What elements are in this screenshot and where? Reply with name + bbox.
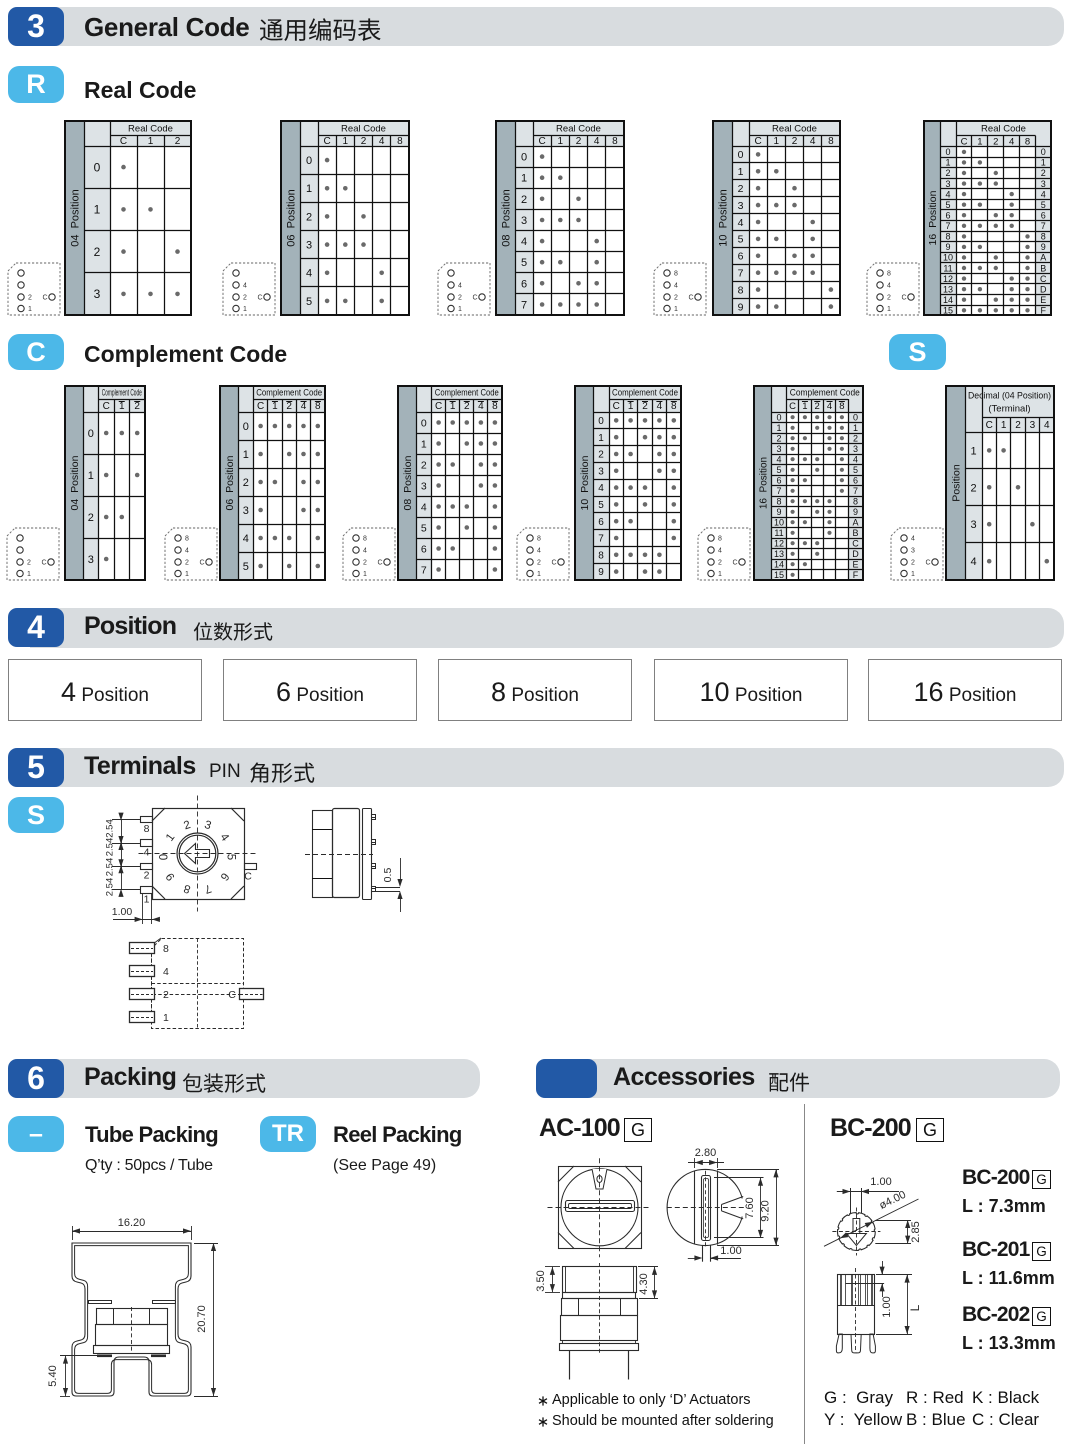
svg-text:13: 13 bbox=[943, 284, 953, 294]
svg-text:0: 0 bbox=[521, 152, 527, 164]
svg-text:4: 4 bbox=[1041, 189, 1046, 199]
svg-text:2: 2 bbox=[421, 459, 427, 471]
svg-text:8: 8 bbox=[718, 535, 722, 542]
svg-text:C: C bbox=[925, 560, 930, 567]
svg-text:4: 4 bbox=[243, 282, 247, 289]
svg-text:8: 8 bbox=[839, 401, 844, 412]
svg-text:8: 8 bbox=[671, 401, 677, 412]
svg-text:1: 1 bbox=[421, 438, 427, 450]
svg-text:8: 8 bbox=[738, 284, 744, 296]
svg-text:1: 1 bbox=[119, 401, 125, 412]
svg-text:1: 1 bbox=[94, 203, 101, 217]
svg-text:1: 1 bbox=[163, 1012, 169, 1024]
svg-text:3: 3 bbox=[243, 505, 249, 517]
svg-text:04 Position: 04 Position bbox=[70, 189, 82, 246]
svg-text:1: 1 bbox=[718, 571, 722, 578]
svg-text:C: C bbox=[435, 401, 442, 412]
svg-text:3: 3 bbox=[1041, 179, 1046, 189]
svg-text:C: C bbox=[257, 295, 262, 302]
svg-text:2: 2 bbox=[738, 183, 744, 195]
svg-text:1: 1 bbox=[88, 470, 94, 482]
svg-text:1.00: 1.00 bbox=[870, 1176, 891, 1188]
svg-text:10: 10 bbox=[774, 518, 784, 528]
svg-text:C: C bbox=[688, 295, 693, 302]
svg-text:1: 1 bbox=[1041, 158, 1046, 168]
svg-text:C: C bbox=[323, 136, 330, 147]
svg-text:2: 2 bbox=[945, 168, 950, 178]
svg-text:4: 4 bbox=[379, 136, 385, 147]
svg-text:6: 6 bbox=[738, 251, 744, 263]
svg-text:11: 11 bbox=[774, 528, 783, 538]
svg-text:Real Code: Real Code bbox=[341, 123, 386, 134]
svg-text:1: 1 bbox=[363, 571, 367, 578]
svg-text:4: 4 bbox=[657, 401, 663, 412]
svg-text:2: 2 bbox=[134, 401, 140, 412]
svg-text:16 Position: 16 Position bbox=[758, 457, 769, 509]
svg-text:4: 4 bbox=[217, 832, 231, 845]
svg-text:1: 1 bbox=[28, 306, 32, 313]
svg-text:8: 8 bbox=[598, 550, 604, 561]
svg-text:C: C bbox=[986, 420, 993, 431]
svg-text:F: F bbox=[853, 570, 859, 580]
svg-text:5: 5 bbox=[853, 465, 858, 475]
svg-text:C: C bbox=[901, 295, 906, 302]
svg-text:2: 2 bbox=[792, 136, 798, 147]
svg-text:2: 2 bbox=[993, 137, 998, 148]
svg-text:3: 3 bbox=[970, 519, 976, 531]
svg-text:5: 5 bbox=[306, 296, 312, 308]
svg-text:2.54: 2.54 bbox=[105, 878, 116, 897]
svg-text:C: C bbox=[120, 136, 127, 147]
svg-text:Real Code: Real Code bbox=[556, 123, 601, 134]
svg-text:9: 9 bbox=[945, 242, 950, 252]
svg-text:9.20: 9.20 bbox=[760, 1200, 772, 1221]
svg-text:9: 9 bbox=[1041, 242, 1046, 252]
svg-text:1: 1 bbox=[243, 449, 249, 461]
svg-text:2: 2 bbox=[887, 294, 891, 301]
svg-text:1: 1 bbox=[148, 136, 154, 147]
svg-text:3: 3 bbox=[945, 179, 950, 189]
svg-text:8: 8 bbox=[674, 270, 678, 277]
svg-text:6: 6 bbox=[853, 476, 858, 486]
svg-text:6: 6 bbox=[598, 517, 604, 528]
svg-text:2.54: 2.54 bbox=[105, 858, 116, 877]
svg-text:2: 2 bbox=[815, 401, 820, 412]
svg-text:1.00: 1.00 bbox=[112, 906, 133, 918]
svg-text:2: 2 bbox=[911, 559, 915, 566]
svg-text:1.00: 1.00 bbox=[881, 1296, 893, 1317]
svg-text:8: 8 bbox=[612, 136, 618, 147]
svg-text:3: 3 bbox=[853, 444, 858, 454]
svg-text:C: C bbox=[472, 295, 477, 302]
svg-text:14: 14 bbox=[774, 560, 784, 570]
svg-text:8: 8 bbox=[828, 136, 834, 147]
svg-text:2: 2 bbox=[718, 559, 722, 566]
svg-text:5: 5 bbox=[598, 500, 604, 511]
svg-text:1: 1 bbox=[343, 136, 349, 147]
svg-text:1: 1 bbox=[911, 571, 915, 578]
svg-text:1: 1 bbox=[977, 137, 982, 148]
svg-text:4: 4 bbox=[537, 547, 541, 554]
svg-text:16 Position: 16 Position bbox=[927, 190, 939, 245]
svg-text:7.60: 7.60 bbox=[744, 1197, 756, 1218]
svg-text:ø4.00: ø4.00 bbox=[877, 1189, 908, 1212]
svg-text:11: 11 bbox=[943, 263, 952, 273]
svg-text:2: 2 bbox=[642, 401, 648, 412]
svg-text:Complement Code: Complement Code bbox=[790, 388, 860, 398]
svg-text:Real Code: Real Code bbox=[981, 124, 1026, 135]
svg-text:1: 1 bbox=[945, 158, 950, 168]
svg-text:4: 4 bbox=[478, 401, 484, 412]
svg-text:10 Position: 10 Position bbox=[579, 455, 591, 510]
svg-text:4: 4 bbox=[911, 535, 915, 542]
svg-text:2: 2 bbox=[175, 136, 181, 147]
svg-text:10 Position: 10 Position bbox=[718, 189, 730, 246]
svg-text:C: C bbox=[228, 989, 236, 1001]
svg-text:3: 3 bbox=[88, 554, 94, 566]
svg-text:Complement Code: Complement Code bbox=[256, 388, 322, 398]
svg-text:4: 4 bbox=[970, 556, 976, 568]
svg-text:5: 5 bbox=[738, 234, 744, 246]
svg-text:1: 1 bbox=[450, 401, 456, 412]
svg-text:1: 1 bbox=[738, 166, 744, 178]
svg-text:2.54: 2.54 bbox=[105, 838, 116, 857]
svg-text:2: 2 bbox=[464, 401, 470, 412]
svg-text:4: 4 bbox=[1009, 137, 1014, 148]
svg-text:2: 2 bbox=[243, 477, 249, 489]
svg-text:0: 0 bbox=[88, 428, 94, 440]
svg-text:0: 0 bbox=[1041, 147, 1046, 157]
svg-text:4: 4 bbox=[598, 483, 604, 494]
svg-text:4.30: 4.30 bbox=[638, 1273, 650, 1294]
svg-text:3: 3 bbox=[598, 466, 604, 477]
svg-text:7: 7 bbox=[945, 221, 950, 231]
svg-text:3: 3 bbox=[306, 240, 312, 252]
svg-text:8: 8 bbox=[163, 943, 169, 955]
svg-text:C: C bbox=[732, 560, 737, 567]
svg-text:Real Code: Real Code bbox=[128, 123, 173, 134]
svg-text:06 Position: 06 Position bbox=[286, 189, 298, 246]
svg-text:D: D bbox=[1040, 284, 1047, 294]
svg-text:6: 6 bbox=[945, 211, 950, 221]
svg-text:C: C bbox=[1040, 274, 1047, 284]
svg-text:7: 7 bbox=[598, 534, 604, 545]
svg-text:1: 1 bbox=[774, 136, 780, 147]
svg-text:2: 2 bbox=[361, 136, 367, 147]
svg-text:1: 1 bbox=[272, 401, 278, 412]
svg-text:2: 2 bbox=[243, 294, 247, 301]
svg-text:6: 6 bbox=[217, 870, 230, 882]
svg-text:6: 6 bbox=[521, 278, 527, 290]
svg-text:1: 1 bbox=[887, 306, 891, 313]
svg-text:Position: Position bbox=[950, 464, 962, 502]
svg-text:1: 1 bbox=[243, 306, 247, 313]
svg-text:2: 2 bbox=[1041, 168, 1046, 178]
svg-text:8: 8 bbox=[363, 535, 367, 542]
svg-text:0: 0 bbox=[776, 413, 781, 423]
svg-text:4: 4 bbox=[185, 547, 189, 554]
svg-text:A: A bbox=[852, 518, 858, 528]
svg-text:9: 9 bbox=[853, 507, 858, 517]
svg-text:0: 0 bbox=[243, 421, 249, 433]
svg-text:5: 5 bbox=[243, 561, 249, 573]
svg-text:1: 1 bbox=[458, 306, 462, 313]
svg-text:1: 1 bbox=[144, 893, 150, 905]
svg-text:7: 7 bbox=[1041, 221, 1046, 231]
svg-text:4: 4 bbox=[738, 217, 744, 229]
svg-text:13: 13 bbox=[774, 549, 784, 559]
svg-text:4: 4 bbox=[827, 401, 832, 412]
svg-text:2: 2 bbox=[94, 245, 101, 259]
svg-text:0: 0 bbox=[94, 160, 101, 174]
svg-text:4: 4 bbox=[674, 282, 678, 289]
svg-text:4: 4 bbox=[776, 455, 781, 465]
svg-text:4: 4 bbox=[363, 547, 367, 554]
svg-text:10: 10 bbox=[943, 253, 953, 263]
svg-text:B: B bbox=[852, 528, 858, 538]
svg-text:8: 8 bbox=[315, 401, 321, 412]
svg-text:2: 2 bbox=[88, 512, 94, 524]
svg-text:0: 0 bbox=[853, 413, 858, 423]
svg-text:8: 8 bbox=[537, 535, 541, 542]
svg-text:C: C bbox=[41, 560, 46, 567]
svg-text:0: 0 bbox=[598, 416, 604, 427]
svg-text:1: 1 bbox=[1001, 420, 1007, 431]
svg-text:2: 2 bbox=[853, 434, 858, 444]
svg-text:8: 8 bbox=[776, 497, 781, 507]
svg-text:2: 2 bbox=[363, 559, 367, 566]
svg-text:L: L bbox=[908, 1304, 922, 1311]
svg-text:08 Position: 08 Position bbox=[501, 189, 513, 246]
svg-text:8: 8 bbox=[887, 270, 891, 277]
svg-text:4: 4 bbox=[301, 401, 307, 412]
svg-text:C: C bbox=[754, 136, 761, 147]
svg-text:2: 2 bbox=[674, 294, 678, 301]
svg-text:4: 4 bbox=[945, 189, 950, 199]
svg-text:C: C bbox=[244, 871, 252, 883]
svg-text:4: 4 bbox=[306, 268, 312, 280]
svg-text:2.85: 2.85 bbox=[910, 1221, 922, 1242]
svg-text:C: C bbox=[789, 401, 796, 412]
svg-text:4: 4 bbox=[887, 282, 891, 289]
svg-text:4: 4 bbox=[163, 966, 169, 978]
svg-text:A: A bbox=[1040, 253, 1046, 263]
svg-text:12: 12 bbox=[943, 274, 953, 284]
svg-text:1: 1 bbox=[628, 401, 634, 412]
svg-text:E: E bbox=[852, 560, 858, 570]
svg-text:4: 4 bbox=[1044, 420, 1050, 431]
svg-text:C: C bbox=[377, 560, 382, 567]
svg-text:C: C bbox=[961, 137, 968, 148]
svg-text:5: 5 bbox=[521, 257, 527, 269]
svg-text:9: 9 bbox=[738, 301, 744, 313]
svg-text:4: 4 bbox=[421, 501, 427, 513]
svg-text:5: 5 bbox=[945, 200, 950, 210]
svg-text:8: 8 bbox=[1041, 232, 1046, 242]
svg-text:2: 2 bbox=[537, 559, 541, 566]
svg-text:C: C bbox=[42, 295, 47, 302]
svg-text:4: 4 bbox=[718, 547, 722, 554]
svg-text:2.80: 2.80 bbox=[695, 1147, 716, 1159]
svg-text:4: 4 bbox=[853, 455, 858, 465]
svg-text:2: 2 bbox=[306, 211, 312, 223]
svg-text:2: 2 bbox=[185, 559, 189, 566]
svg-text:E: E bbox=[1040, 295, 1046, 305]
svg-text:3: 3 bbox=[776, 444, 781, 454]
svg-text:1: 1 bbox=[558, 136, 564, 147]
svg-text:2: 2 bbox=[163, 989, 169, 1001]
svg-text:4: 4 bbox=[458, 282, 462, 289]
svg-text:1: 1 bbox=[537, 571, 541, 578]
svg-text:2: 2 bbox=[28, 294, 32, 301]
svg-text:1.00: 1.00 bbox=[720, 1245, 741, 1257]
svg-text:C: C bbox=[199, 560, 204, 567]
svg-text:1: 1 bbox=[853, 423, 858, 433]
svg-text:04 Position: 04 Position bbox=[69, 455, 81, 510]
svg-text:3: 3 bbox=[911, 547, 915, 554]
svg-text:3: 3 bbox=[94, 287, 101, 301]
svg-text:2: 2 bbox=[598, 450, 604, 461]
svg-text:4: 4 bbox=[594, 136, 600, 147]
svg-text:7: 7 bbox=[421, 564, 427, 576]
svg-text:1: 1 bbox=[674, 306, 678, 313]
svg-text:15: 15 bbox=[774, 570, 784, 580]
svg-text:8: 8 bbox=[185, 535, 189, 542]
svg-text:20.70: 20.70 bbox=[196, 1305, 208, 1333]
svg-text:6: 6 bbox=[421, 543, 427, 555]
svg-text:7: 7 bbox=[853, 486, 858, 496]
svg-text:1: 1 bbox=[521, 173, 527, 185]
svg-text:3: 3 bbox=[521, 215, 527, 227]
svg-text:0: 0 bbox=[738, 149, 744, 161]
svg-text:2: 2 bbox=[182, 819, 192, 832]
svg-text:(Terminal): (Terminal) bbox=[988, 403, 1030, 414]
svg-text:D: D bbox=[852, 549, 859, 559]
svg-text:0: 0 bbox=[306, 155, 312, 167]
svg-text:Real Code: Real Code bbox=[772, 123, 817, 134]
svg-text:2: 2 bbox=[970, 482, 976, 494]
svg-text:2: 2 bbox=[458, 294, 462, 301]
svg-text:08 Position: 08 Position bbox=[402, 455, 414, 510]
svg-text:1: 1 bbox=[164, 832, 177, 844]
svg-text:5.40: 5.40 bbox=[47, 1365, 59, 1386]
svg-text:1: 1 bbox=[970, 445, 976, 457]
svg-text:C: C bbox=[852, 539, 859, 549]
svg-text:2.54: 2.54 bbox=[105, 819, 116, 838]
svg-text:6: 6 bbox=[776, 476, 781, 486]
svg-text:14: 14 bbox=[943, 295, 953, 305]
svg-text:5: 5 bbox=[1041, 200, 1046, 210]
svg-text:C: C bbox=[257, 401, 264, 412]
svg-text:4: 4 bbox=[144, 847, 150, 859]
svg-text:C: C bbox=[551, 560, 556, 567]
svg-text:0: 0 bbox=[159, 854, 171, 860]
svg-text:1: 1 bbox=[802, 401, 807, 412]
svg-text:3.50: 3.50 bbox=[535, 1270, 547, 1291]
svg-text:9: 9 bbox=[164, 870, 177, 882]
svg-text:4: 4 bbox=[810, 136, 816, 147]
svg-text:1: 1 bbox=[598, 433, 604, 444]
svg-text:C: C bbox=[613, 401, 620, 412]
svg-text:0: 0 bbox=[945, 147, 950, 157]
svg-text:3: 3 bbox=[203, 819, 213, 832]
svg-text:2: 2 bbox=[27, 559, 31, 566]
svg-text:2: 2 bbox=[521, 194, 527, 206]
svg-text:6: 6 bbox=[1041, 211, 1046, 221]
svg-text:Complement Code: Complement Code bbox=[102, 388, 142, 398]
svg-text:12: 12 bbox=[774, 539, 784, 549]
svg-text:3: 3 bbox=[421, 480, 427, 492]
svg-text:2: 2 bbox=[1015, 420, 1021, 431]
svg-text:1: 1 bbox=[27, 571, 31, 578]
svg-text:B: B bbox=[1040, 263, 1046, 273]
svg-text:3: 3 bbox=[738, 200, 744, 212]
svg-text:C: C bbox=[103, 401, 110, 412]
svg-text:C: C bbox=[538, 136, 545, 147]
svg-text:8: 8 bbox=[945, 232, 950, 242]
svg-text:9: 9 bbox=[776, 507, 781, 517]
svg-text:06 Position: 06 Position bbox=[224, 455, 236, 510]
svg-text:8: 8 bbox=[144, 823, 150, 835]
svg-text:7: 7 bbox=[203, 882, 213, 895]
svg-text:8: 8 bbox=[1025, 137, 1030, 148]
svg-text:8: 8 bbox=[853, 497, 858, 507]
svg-text:5: 5 bbox=[225, 854, 237, 860]
svg-text:7: 7 bbox=[738, 268, 744, 280]
svg-text:2: 2 bbox=[576, 136, 582, 147]
svg-text:1: 1 bbox=[306, 183, 312, 195]
svg-text:16.20: 16.20 bbox=[118, 1217, 146, 1229]
svg-text:1: 1 bbox=[776, 423, 781, 433]
svg-text:8: 8 bbox=[397, 136, 403, 147]
svg-text:3: 3 bbox=[1030, 420, 1036, 431]
svg-text:2: 2 bbox=[144, 870, 150, 882]
svg-text:8: 8 bbox=[492, 401, 498, 412]
svg-text:2: 2 bbox=[286, 401, 292, 412]
svg-text:1: 1 bbox=[185, 571, 189, 578]
svg-text:5: 5 bbox=[776, 465, 781, 475]
svg-text:2: 2 bbox=[776, 434, 781, 444]
svg-text:4: 4 bbox=[521, 236, 527, 248]
svg-text:0.5: 0.5 bbox=[382, 868, 394, 883]
svg-text:8: 8 bbox=[182, 882, 192, 895]
svg-text:Decimal (04 Position): Decimal (04 Position) bbox=[968, 390, 1051, 401]
svg-text:0: 0 bbox=[421, 417, 427, 429]
svg-text:5: 5 bbox=[421, 522, 427, 534]
svg-text:7: 7 bbox=[776, 486, 781, 496]
svg-text:9: 9 bbox=[598, 567, 604, 578]
svg-text:Complement Code: Complement Code bbox=[612, 388, 678, 398]
svg-text:7: 7 bbox=[521, 299, 527, 311]
svg-text:Complement Code: Complement Code bbox=[435, 388, 499, 398]
svg-text:4: 4 bbox=[243, 533, 249, 545]
